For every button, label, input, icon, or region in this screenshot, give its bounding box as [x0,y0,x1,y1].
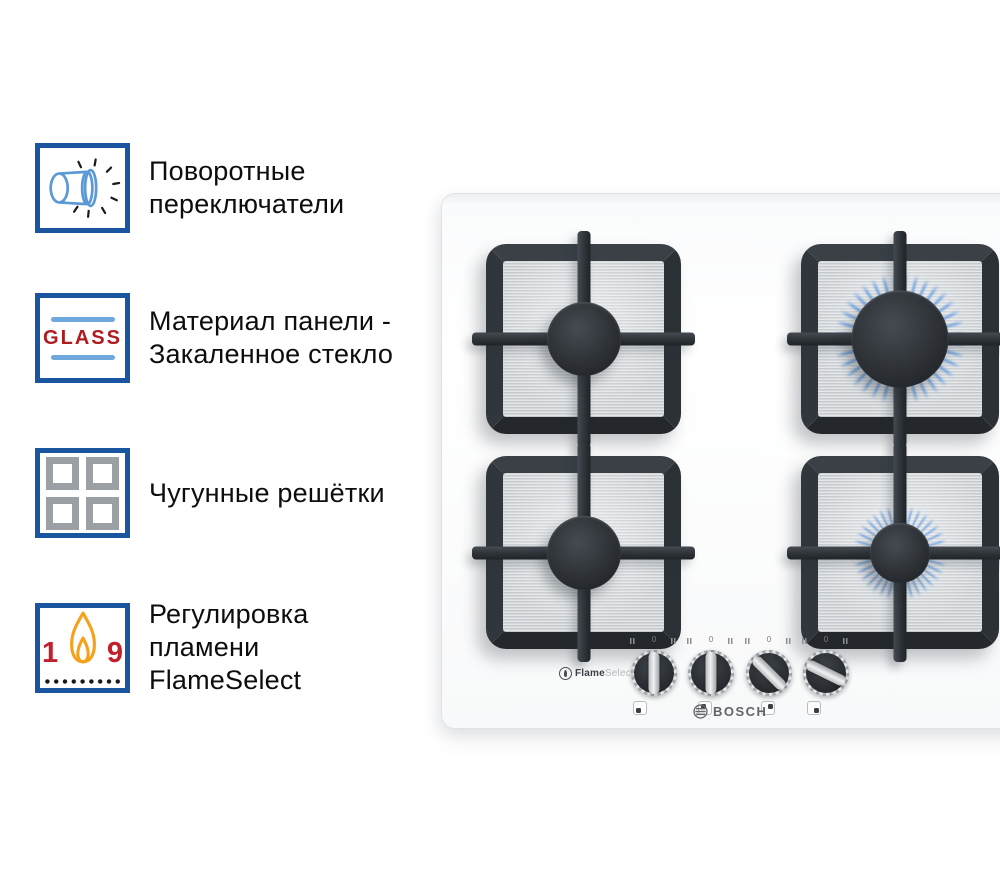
glass-panel-icon: GLASS [35,293,130,383]
feature-label-line: Чугунные решётки [149,477,385,510]
knob-zero-mark: 0 [709,635,713,645]
cast-iron-grates-icon [35,448,130,538]
indicator-dot [814,708,819,713]
knob-scale: 0 [798,635,854,647]
feature-row-flameselect: 1 9 Регулировка пламени FlameSelect [35,598,308,697]
flame-high-mark [802,638,809,644]
feature-label-line: Материал панели - [149,305,393,338]
flameselect-logo-light: Select [605,668,634,679]
bosch-emblem-icon [693,704,708,719]
rotary-knob-glyph [42,154,124,222]
product-card: Поворотные переключатели GLASS Материал … [0,0,1000,870]
flame-low-mark [843,638,850,644]
flameselect-logo-bold: Flame [575,668,605,679]
indicator-dot [768,704,773,709]
burner-back-right [801,244,999,434]
flame-low-mark [671,638,678,644]
grate-cell [46,457,79,490]
burner-front-left [486,456,681,649]
glass-line-bottom [51,355,115,360]
knob-scale: 0 [683,635,739,647]
burner-front-right [801,456,999,649]
knob-handle [706,652,717,694]
feature-row-glass-panel: GLASS Материал панели - Закаленное стекл… [35,293,393,383]
burner-cap [870,523,930,583]
feature-label-line: Закаленное стекло [149,338,393,371]
flame-low-mark [786,638,793,644]
burner-cap [547,302,621,376]
feature-label-line: Поворотные [149,155,344,188]
control-knob-4 [803,650,849,696]
bosch-logo: BOSCH [693,704,767,719]
feature-label-line: пламени [149,631,308,664]
gas-hob-photo: 0 0 0 0 [441,193,1000,729]
flame-glyph [65,611,101,667]
burner-position-indicator [807,701,821,715]
feature-label-line: FlameSelect [149,664,308,697]
glass-line-top [51,317,115,322]
feature-label: Поворотные переключатели [149,155,344,221]
knob-scale: 0 [626,635,682,647]
flameselect-flame-icon [559,667,572,680]
flame-high-mark [687,638,694,644]
burner-back-left [486,244,681,434]
flame-level-min: 1 [42,638,58,668]
control-knob-1 [631,650,677,696]
burner-cap [547,516,621,590]
flame-level-dots [43,679,122,684]
grate-cell [86,497,119,530]
flame-select-icon: 1 9 [35,603,130,693]
knob-zero-mark: 0 [824,635,828,645]
feature-row-cast-iron-grates: Чугунные решётки [35,448,385,538]
control-knob-3 [746,650,792,696]
knob-scale: 0 [741,635,797,647]
feature-label: Материал панели - Закаленное стекло [149,305,393,371]
burner-cap [852,291,949,388]
feature-label-line: переключатели [149,188,344,221]
grate-cell [86,457,119,490]
knob-zero-mark: 0 [767,635,771,645]
control-knob-2 [688,650,734,696]
feature-label-line: Регулировка [149,598,308,631]
flame-high-mark [745,638,752,644]
flameselect-logo: FlameSelect [559,667,634,680]
flame-low-mark [728,638,735,644]
knob-zero-mark: 0 [652,635,656,645]
glass-word: GLASS [43,327,122,350]
knob-handle [649,652,660,694]
indicator-dot [636,708,641,713]
burner-position-indicator [633,701,647,715]
rotary-switch-icon [35,143,130,233]
grate-cell [46,497,79,530]
flame-high-mark [630,638,637,644]
bosch-logo-text: BOSCH [713,704,767,719]
feature-label: Чугунные решётки [149,477,385,510]
flame-level-max: 9 [107,638,123,668]
feature-label: Регулировка пламени FlameSelect [149,598,308,697]
feature-row-rotary-switches: Поворотные переключатели [35,143,344,233]
